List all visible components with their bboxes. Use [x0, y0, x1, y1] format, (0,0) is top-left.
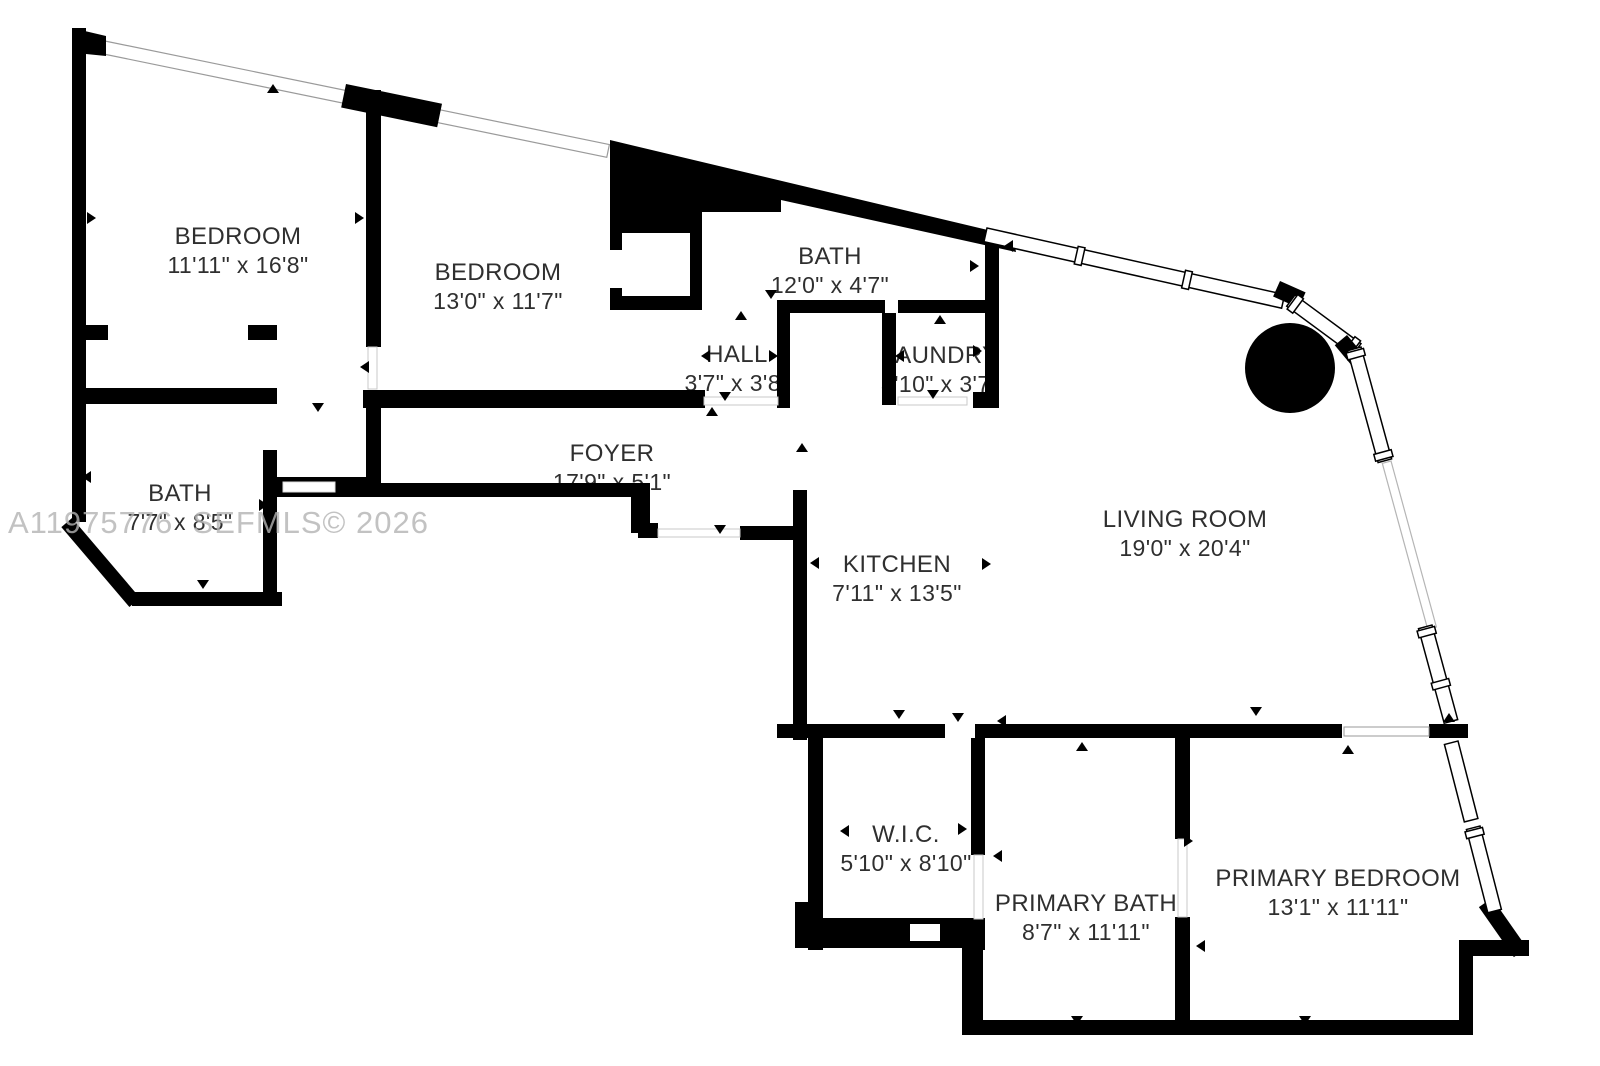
room-label-wic: W.I.C. 5'10" x 8'10" — [840, 821, 971, 877]
room-name: BEDROOM — [433, 259, 563, 287]
window-band-right — [984, 226, 1504, 913]
room-label-primary-bedroom: PRIMARY BEDROOM 13'1" x 11'11" — [1215, 865, 1460, 921]
room-name: FOYER — [553, 440, 671, 468]
room-name: BATH — [128, 480, 233, 508]
room-dims: 13'0" x 11'7" — [433, 287, 563, 315]
room-label-living-room: LIVING ROOM 19'0" x 20'4" — [1103, 506, 1267, 562]
room-label-bath-top: BATH 12'0" x 4'7" — [771, 243, 889, 299]
room-name: HALL — [685, 341, 790, 369]
room-dims: 5'10" x 8'10" — [840, 849, 971, 877]
structural-column — [1245, 323, 1335, 413]
room-dims: 17'9" x 5'1" — [553, 468, 671, 496]
room-name: LAUNDRY — [881, 342, 999, 370]
room-label-laundry: LAUNDRY 3'10" x 3'7" — [881, 342, 999, 398]
room-name: W.I.C. — [840, 821, 971, 849]
window-band — [97, 40, 609, 157]
room-label-foyer: FOYER 17'9" x 5'1" — [553, 440, 671, 496]
room-dims: 13'1" x 11'11" — [1215, 893, 1460, 921]
room-dims: 11'11" x 16'8" — [167, 251, 308, 279]
room-name: LIVING ROOM — [1103, 506, 1267, 534]
room-dims: 19'0" x 20'4" — [1103, 534, 1267, 562]
room-dims: 3'7" x 3'8" — [685, 369, 790, 397]
room-label-primary-bath: PRIMARY BATH 8'7" x 11'11" — [995, 890, 1177, 946]
room-label-hall: HALL 3'7" x 3'8" — [685, 341, 790, 397]
room-name: PRIMARY BATH — [995, 890, 1177, 918]
room-label-bedroom-2: BEDROOM 13'0" x 11'7" — [433, 259, 563, 315]
room-name: BEDROOM — [167, 223, 308, 251]
room-dims: 12'0" x 4'7" — [771, 271, 889, 299]
room-dims: 8'7" x 11'11" — [995, 918, 1177, 946]
room-dims: 7'11" x 13'5" — [832, 579, 962, 607]
room-dims: 3'10" x 3'7" — [881, 370, 999, 398]
floor-plan: BEDROOM 11'11" x 16'8" BEDROOM 13'0" x 1… — [0, 0, 1600, 1066]
room-name: KITCHEN — [832, 551, 962, 579]
mls-watermark: A11975776 SEFMLS© 2026 — [8, 505, 429, 541]
room-name: PRIMARY BEDROOM — [1215, 865, 1460, 893]
room-name: BATH — [771, 243, 889, 271]
room-label-kitchen: KITCHEN 7'11" x 13'5" — [832, 551, 962, 607]
room-label-bedroom-1: BEDROOM 11'11" x 16'8" — [167, 223, 308, 279]
